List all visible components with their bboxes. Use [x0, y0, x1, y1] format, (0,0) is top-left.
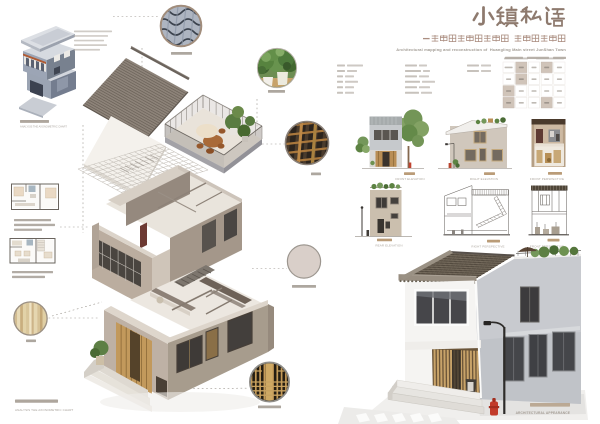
- svg-text:RIGHT ELEVATION: RIGHT ELEVATION: [470, 177, 498, 181]
- svg-text:ANALYSIS THE AXONOMETRIC CHART: ANALYSIS THE AXONOMETRIC CHART: [20, 124, 67, 128]
- svg-text:Architectural mapping and reco: Architectural mapping and reconstruction…: [396, 47, 566, 52]
- svg-text:ANALYSIS THE AXONOMETRIC CHART: ANALYSIS THE AXONOMETRIC CHART: [15, 408, 73, 412]
- svg-text:FRONT PERSPECTIVE: FRONT PERSPECTIVE: [530, 177, 564, 181]
- svg-text:ARCHITECTURAL APPEARANCE: ARCHITECTURAL APPEARANCE: [516, 411, 571, 415]
- svg-text:RIGHT PERSPECTIVE: RIGHT PERSPECTIVE: [471, 244, 504, 248]
- svg-text:REAR ELEVATION: REAR ELEVATION: [375, 243, 402, 247]
- svg-text:FRONT ELEVATION: FRONT ELEVATION: [395, 177, 424, 181]
